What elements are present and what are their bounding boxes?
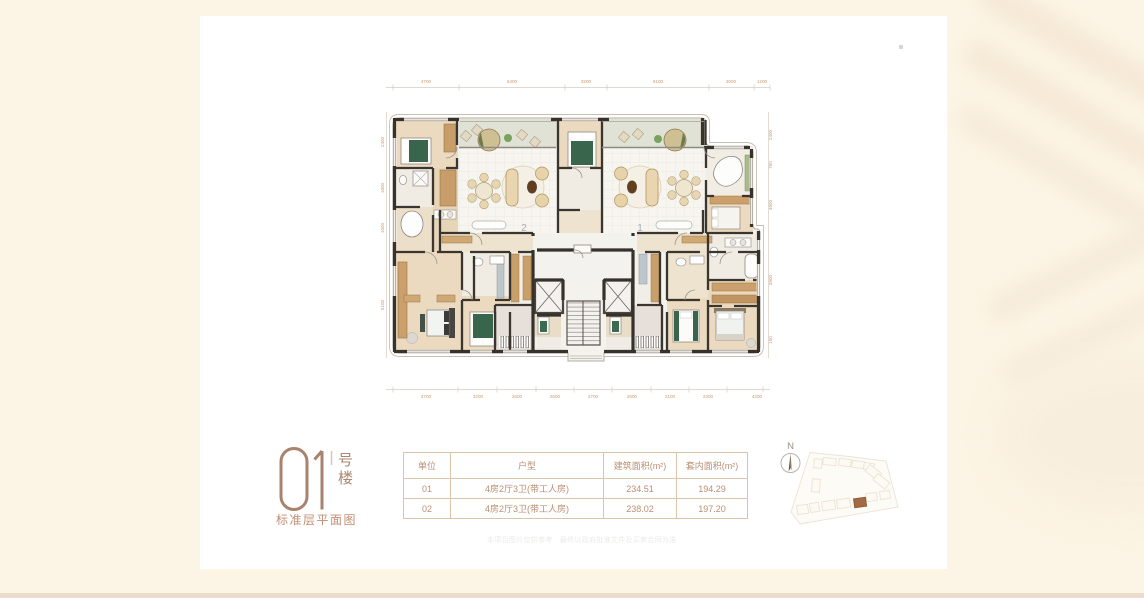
svg-text:150: 150 bbox=[768, 336, 773, 344]
svg-text:2600: 2600 bbox=[512, 394, 523, 399]
svg-text:3000: 3000 bbox=[726, 79, 737, 84]
svg-text:2400: 2400 bbox=[768, 129, 773, 140]
svg-text:号: 号 bbox=[338, 452, 353, 469]
svg-text:750: 750 bbox=[768, 161, 773, 169]
svg-text:2600: 2600 bbox=[550, 394, 561, 399]
svg-text:1200: 1200 bbox=[757, 79, 768, 84]
svg-text:3900: 3900 bbox=[768, 274, 773, 285]
svg-text:4200: 4200 bbox=[752, 394, 763, 399]
svg-text:3200: 3200 bbox=[581, 79, 592, 84]
svg-text:1500: 1500 bbox=[380, 222, 385, 233]
svg-text:6400: 6400 bbox=[507, 79, 518, 84]
svg-text:4700: 4700 bbox=[421, 394, 432, 399]
svg-text:2100: 2100 bbox=[665, 394, 676, 399]
svg-text:楼: 楼 bbox=[338, 470, 353, 487]
svg-text:4700: 4700 bbox=[421, 79, 432, 84]
svg-text:2400: 2400 bbox=[380, 136, 385, 147]
svg-text:1800: 1800 bbox=[380, 182, 385, 193]
svg-text:3200: 3200 bbox=[473, 394, 484, 399]
svg-text:6100: 6100 bbox=[653, 79, 664, 84]
svg-text:4600: 4600 bbox=[768, 199, 773, 210]
svg-text:N: N bbox=[787, 441, 794, 452]
svg-text:2300: 2300 bbox=[703, 394, 714, 399]
svg-text:5100: 5100 bbox=[380, 299, 385, 310]
svg-text:2600: 2600 bbox=[627, 394, 638, 399]
svg-text:2700: 2700 bbox=[588, 394, 599, 399]
